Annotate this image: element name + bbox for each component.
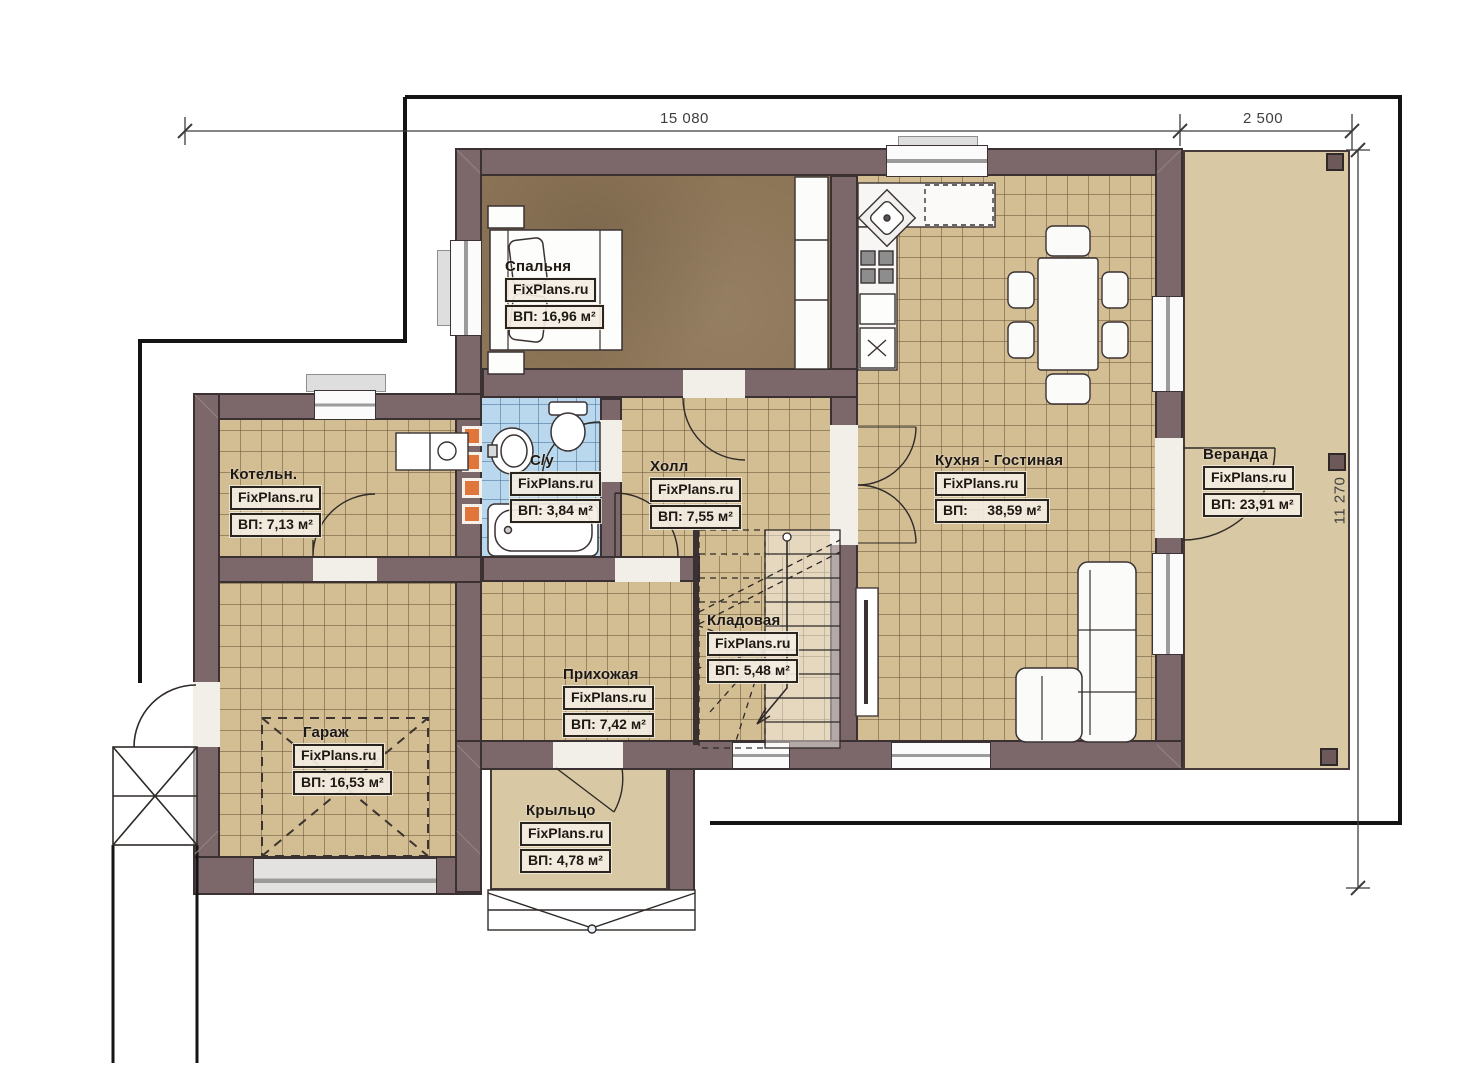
room-name: Веранда (1203, 446, 1302, 463)
label-kitchen-living: Кухня - Гостиная FixPlans.ru ВП: 38,59 м… (935, 452, 1063, 523)
dimension-right: 11 270 (1331, 477, 1348, 525)
chair-icon (1102, 272, 1128, 308)
corner-sofa (1016, 562, 1136, 742)
label-bedroom: Спальня FixPlans.ru ВП: 16,96 м² (505, 258, 604, 329)
brand-box: FixPlans.ru (520, 822, 611, 846)
wardrobe (795, 177, 828, 369)
brand-box: FixPlans.ru (510, 472, 601, 496)
area-box: ВП: 7,42 м² (563, 713, 654, 737)
room-name: С/у (530, 452, 601, 469)
area-box: ВП: 23,91 м² (1203, 493, 1302, 517)
oven-icon (860, 294, 895, 324)
chair-icon (1046, 226, 1090, 256)
brand-box: FixPlans.ru (650, 478, 741, 502)
room-name: Кладовая (707, 612, 798, 629)
label-garage: Гараж FixPlans.ru ВП: 16,53 м² (293, 724, 392, 795)
label-porch: Крыльцо FixPlans.ru ВП: 4,78 м² (520, 802, 611, 873)
label-storage: Кладовая FixPlans.ru ВП: 5,48 м² (707, 612, 798, 683)
kitchen-counter (858, 183, 995, 370)
area-box: ВП: 3,84 м² (510, 499, 601, 523)
brand-box: FixPlans.ru (293, 744, 384, 768)
brand-box: FixPlans.ru (230, 486, 321, 510)
entrance-gate (113, 685, 197, 845)
room-name: Спальня (505, 258, 604, 275)
toilet-bowl-icon (551, 413, 585, 451)
chair-icon (1102, 322, 1128, 358)
label-bathroom: С/у FixPlans.ru ВП: 3,84 м² (510, 452, 601, 523)
room-name: Котельн. (230, 466, 321, 483)
chair-icon (1046, 374, 1090, 404)
room-name: Прихожая (563, 666, 654, 683)
dimension-top: 15 080 (660, 110, 709, 127)
chair-icon (1008, 272, 1034, 308)
boiler-unit (396, 433, 468, 470)
area-box: ВП: 7,55 м² (650, 505, 741, 529)
room-name: Холл (650, 458, 741, 475)
brand-box: FixPlans.ru (707, 632, 798, 656)
area-box: ВП: 16,96 м² (505, 305, 604, 329)
area-box: ВП: 7,13 м² (230, 513, 321, 537)
area-box: ВП: 16,53 м² (293, 771, 392, 795)
area-box: ВП: 38,59 м² (935, 499, 1049, 523)
label-entry-hall: Прихожая FixPlans.ru ВП: 7,42 м² (563, 666, 654, 737)
area-box: ВП: 5,48 м² (707, 659, 798, 683)
brand-box: FixPlans.ru (505, 278, 596, 302)
label-hall: Холл FixPlans.ru ВП: 7,55 м² (650, 458, 741, 529)
label-veranda: Веранда FixPlans.ru ВП: 23,91 м² (1203, 446, 1302, 517)
nightstand-icon (488, 206, 524, 228)
plan-linework (0, 0, 1473, 1080)
area-box: ВП: 4,78 м² (520, 849, 611, 873)
room-name: Кухня - Гостиная (935, 452, 1063, 469)
brand-box: FixPlans.ru (1203, 466, 1294, 490)
porch-steps (488, 890, 695, 933)
property-boundary (113, 97, 1400, 1063)
floor-plan: Спальня FixPlans.ru ВП: 16,96 м² Котельн… (0, 0, 1473, 1080)
room-name: Гараж (303, 724, 392, 741)
dimension-top-right: 2 500 (1243, 110, 1283, 127)
brand-box: FixPlans.ru (563, 686, 654, 710)
room-name: Крыльцо (526, 802, 611, 819)
brand-box: FixPlans.ru (935, 472, 1026, 496)
label-boiler-room: Котельн. FixPlans.ru ВП: 7,13 м² (230, 466, 321, 537)
tv-console (856, 588, 878, 716)
nightstand-icon (488, 352, 524, 374)
dining-table (1038, 258, 1098, 370)
chair-icon (1008, 322, 1034, 358)
dining-set (1008, 226, 1128, 404)
